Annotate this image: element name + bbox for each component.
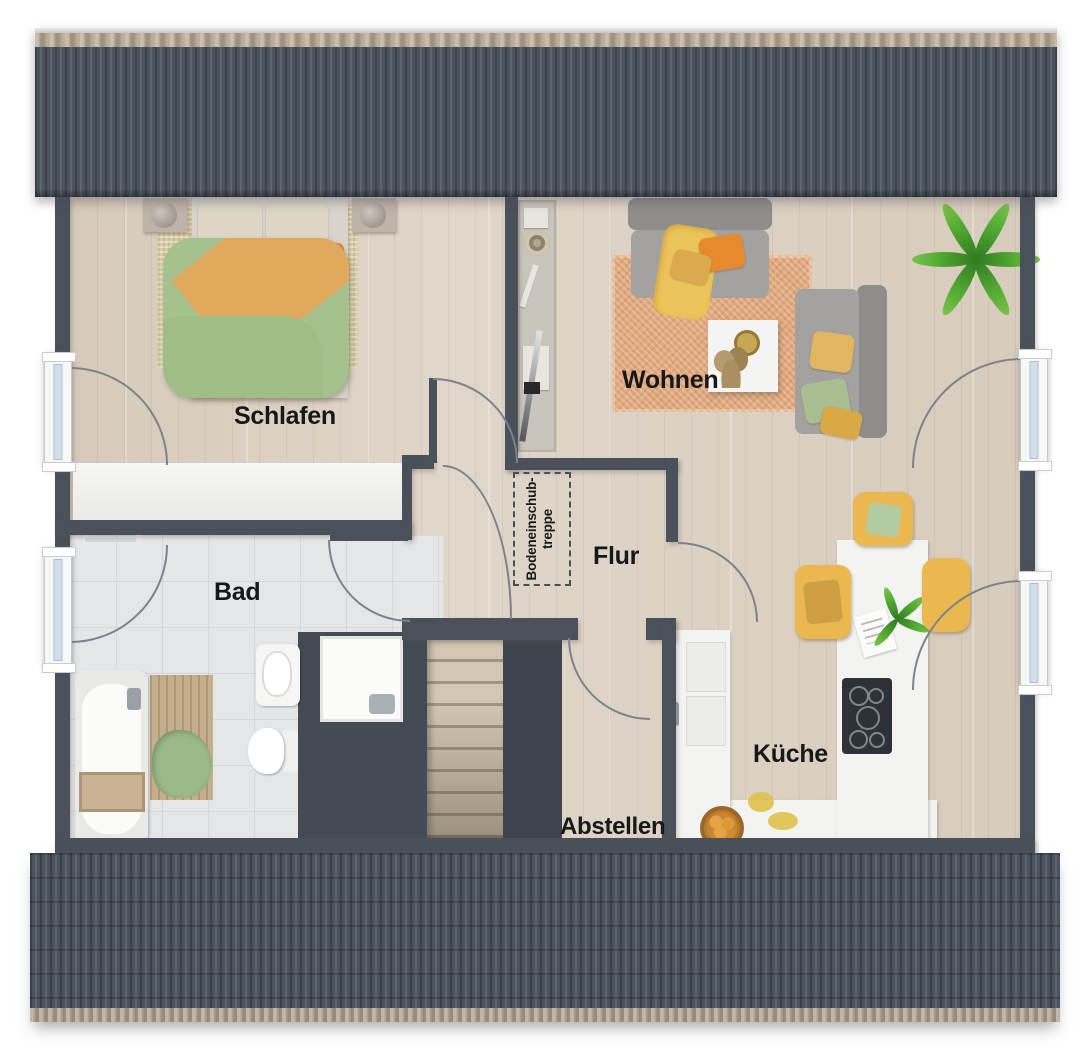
- tv-shelf-unit: [518, 200, 556, 452]
- bath-caddy: [79, 772, 145, 812]
- window-cap: [42, 462, 76, 472]
- room-label-abstellen: Abstellen: [560, 813, 665, 841]
- book-stack: [524, 208, 548, 228]
- wall-flur-kueche: [666, 458, 678, 542]
- burner-icon: [849, 730, 868, 749]
- flowers: [748, 792, 774, 812]
- chair-cushion: [803, 579, 843, 625]
- room-label-wohnen: Wohnen: [622, 366, 718, 395]
- window-cap: [1018, 349, 1052, 359]
- flowers: [768, 812, 798, 830]
- dining-chair: [853, 492, 913, 546]
- window-glass: [1030, 361, 1039, 459]
- lamp-icon: [151, 202, 177, 228]
- window: [44, 355, 72, 469]
- coffee-table: [708, 320, 778, 392]
- burner-icon: [856, 706, 880, 730]
- window: [1020, 352, 1048, 468]
- attic-hatch-label: Bodeneinschub- treppe: [513, 474, 567, 584]
- window-cap: [42, 663, 76, 673]
- duvet-green-fold: [163, 316, 323, 398]
- tv-stand: [524, 382, 540, 394]
- shower: [320, 636, 403, 722]
- chaise-sofa: [795, 285, 887, 438]
- dried-plant: [714, 344, 748, 388]
- floorplan-canvas: Bodeneinschub- treppe Schlafen Wohnen Ba…: [0, 0, 1090, 1051]
- sofa-backrest: [628, 198, 772, 230]
- window-glass: [54, 364, 63, 460]
- room-label-kueche: Küche: [753, 740, 828, 769]
- burner-icon: [868, 688, 884, 704]
- stairwell-void: [503, 640, 562, 838]
- attic-hatch-line2: treppe: [540, 509, 556, 549]
- window-cap: [42, 547, 76, 557]
- window: [1020, 574, 1048, 692]
- roof-bottom: [30, 853, 1060, 1022]
- duvet: [163, 238, 349, 398]
- wall-wohnen-flur: [505, 458, 678, 470]
- decor-wreath: [524, 230, 550, 256]
- roof-tiles: [35, 47, 1057, 197]
- attic-hatch-line1: Bodeneinschub-: [524, 478, 540, 581]
- faucet-icon: [127, 688, 141, 710]
- shower-fixture-icon: [369, 694, 395, 714]
- nightstand-left: [143, 198, 187, 232]
- roof-tiles: [30, 853, 1060, 1008]
- roof-top: [35, 28, 1057, 197]
- outer-wall-right: [1020, 197, 1035, 853]
- window: [44, 550, 72, 670]
- outer-wall-bottom: [55, 838, 1035, 853]
- window-glass: [1030, 583, 1039, 683]
- fridge-panel: [686, 696, 726, 746]
- palm-plant: [938, 214, 1014, 290]
- fridge-panel: [686, 642, 726, 692]
- window-cap: [42, 352, 76, 362]
- room-label-schlafen: Schlafen: [234, 402, 336, 431]
- roof-eave-board: [30, 1008, 1060, 1022]
- window-cap: [1018, 685, 1052, 695]
- nightstand-right: [352, 198, 396, 232]
- pillow-yellow: [809, 330, 856, 373]
- toilet-tank: [282, 730, 298, 772]
- wall-flur-south: [402, 618, 578, 640]
- cooktop: [842, 678, 892, 754]
- burner-icon: [869, 732, 885, 748]
- pillow: [266, 203, 328, 243]
- bathtub: [75, 670, 148, 845]
- window-glass: [54, 559, 63, 661]
- kitchen-plant: [872, 590, 922, 640]
- attic-hatch-outline: Bodeneinschub- treppe: [513, 472, 571, 586]
- towel: [152, 730, 212, 798]
- toilet: [248, 728, 284, 774]
- wardrobe: [73, 463, 402, 520]
- towel-rail-bar: [85, 538, 140, 542]
- room-label-bad: Bad: [214, 578, 260, 607]
- dining-chair: [795, 565, 851, 639]
- staircase: [427, 640, 503, 838]
- lamp-icon: [360, 202, 386, 228]
- window-cap: [1018, 461, 1052, 471]
- sink: [256, 644, 300, 706]
- burner-icon: [849, 686, 869, 706]
- chair-cushion: [865, 502, 902, 538]
- window-cap: [1018, 571, 1052, 581]
- room-label-flur: Flur: [593, 542, 639, 571]
- picture-frame: [519, 264, 538, 308]
